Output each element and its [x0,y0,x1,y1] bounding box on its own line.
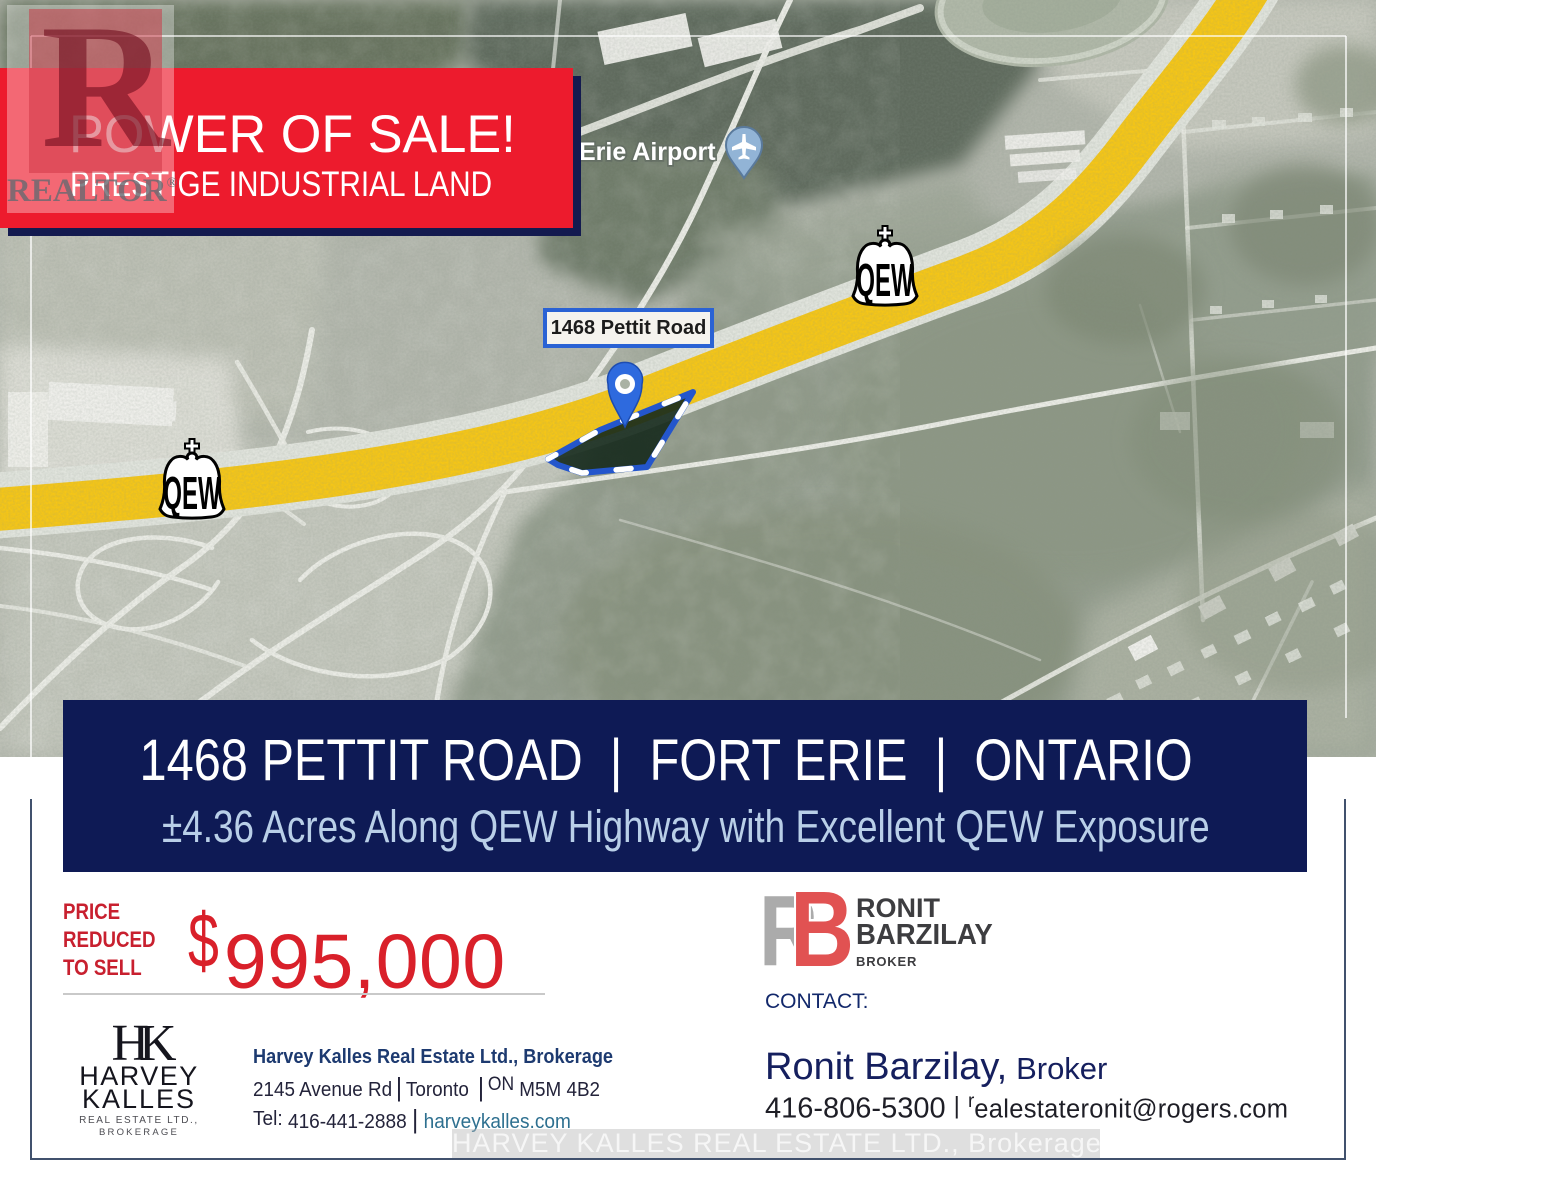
svg-text:Erie Airport: Erie Airport [579,138,716,166]
